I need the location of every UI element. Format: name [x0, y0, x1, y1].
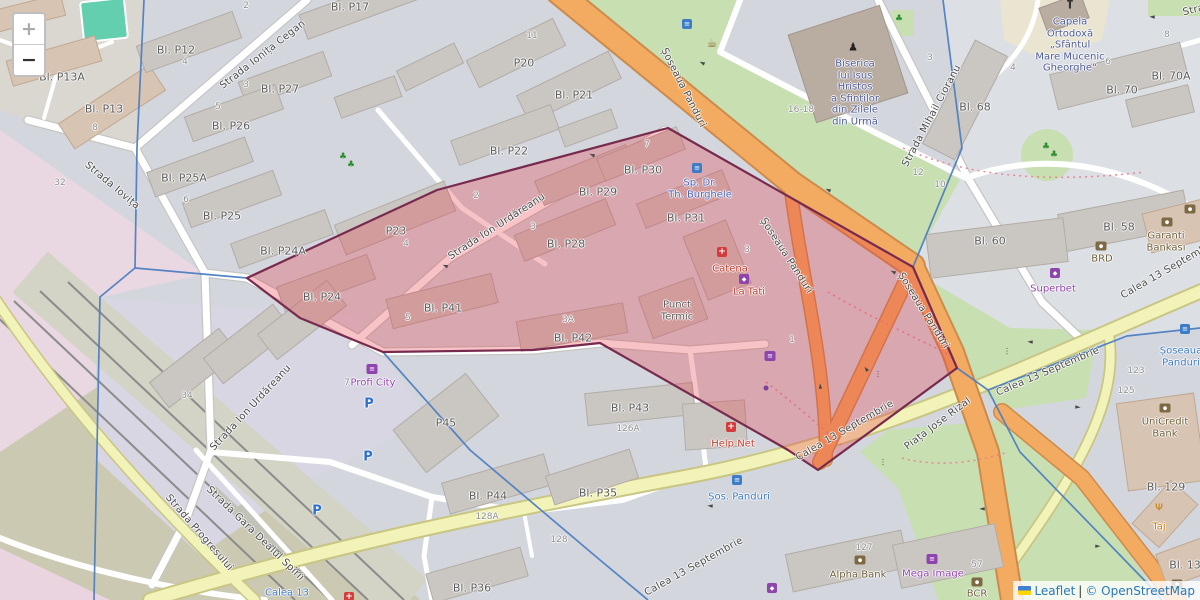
ukraine-flag-icon: [1018, 586, 1031, 595]
zoom-control: + −: [12, 12, 46, 77]
attribution-separator: |: [1078, 584, 1082, 598]
leaflet-map-viewport[interactable]: Strada Ionița CeganStrada IovițaStrada I…: [0, 0, 1200, 600]
zoom-out-button[interactable]: −: [14, 45, 44, 75]
attribution-bar: Leaflet | © OpenStreetMap: [1013, 581, 1200, 600]
playground-area: [80, 0, 128, 42]
leaflet-link[interactable]: Leaflet: [1034, 584, 1075, 598]
zoom-in-button[interactable]: +: [14, 14, 44, 45]
map-canvas: [0, 0, 1200, 600]
openstreetmap-link[interactable]: © OpenStreetMap: [1085, 584, 1195, 598]
